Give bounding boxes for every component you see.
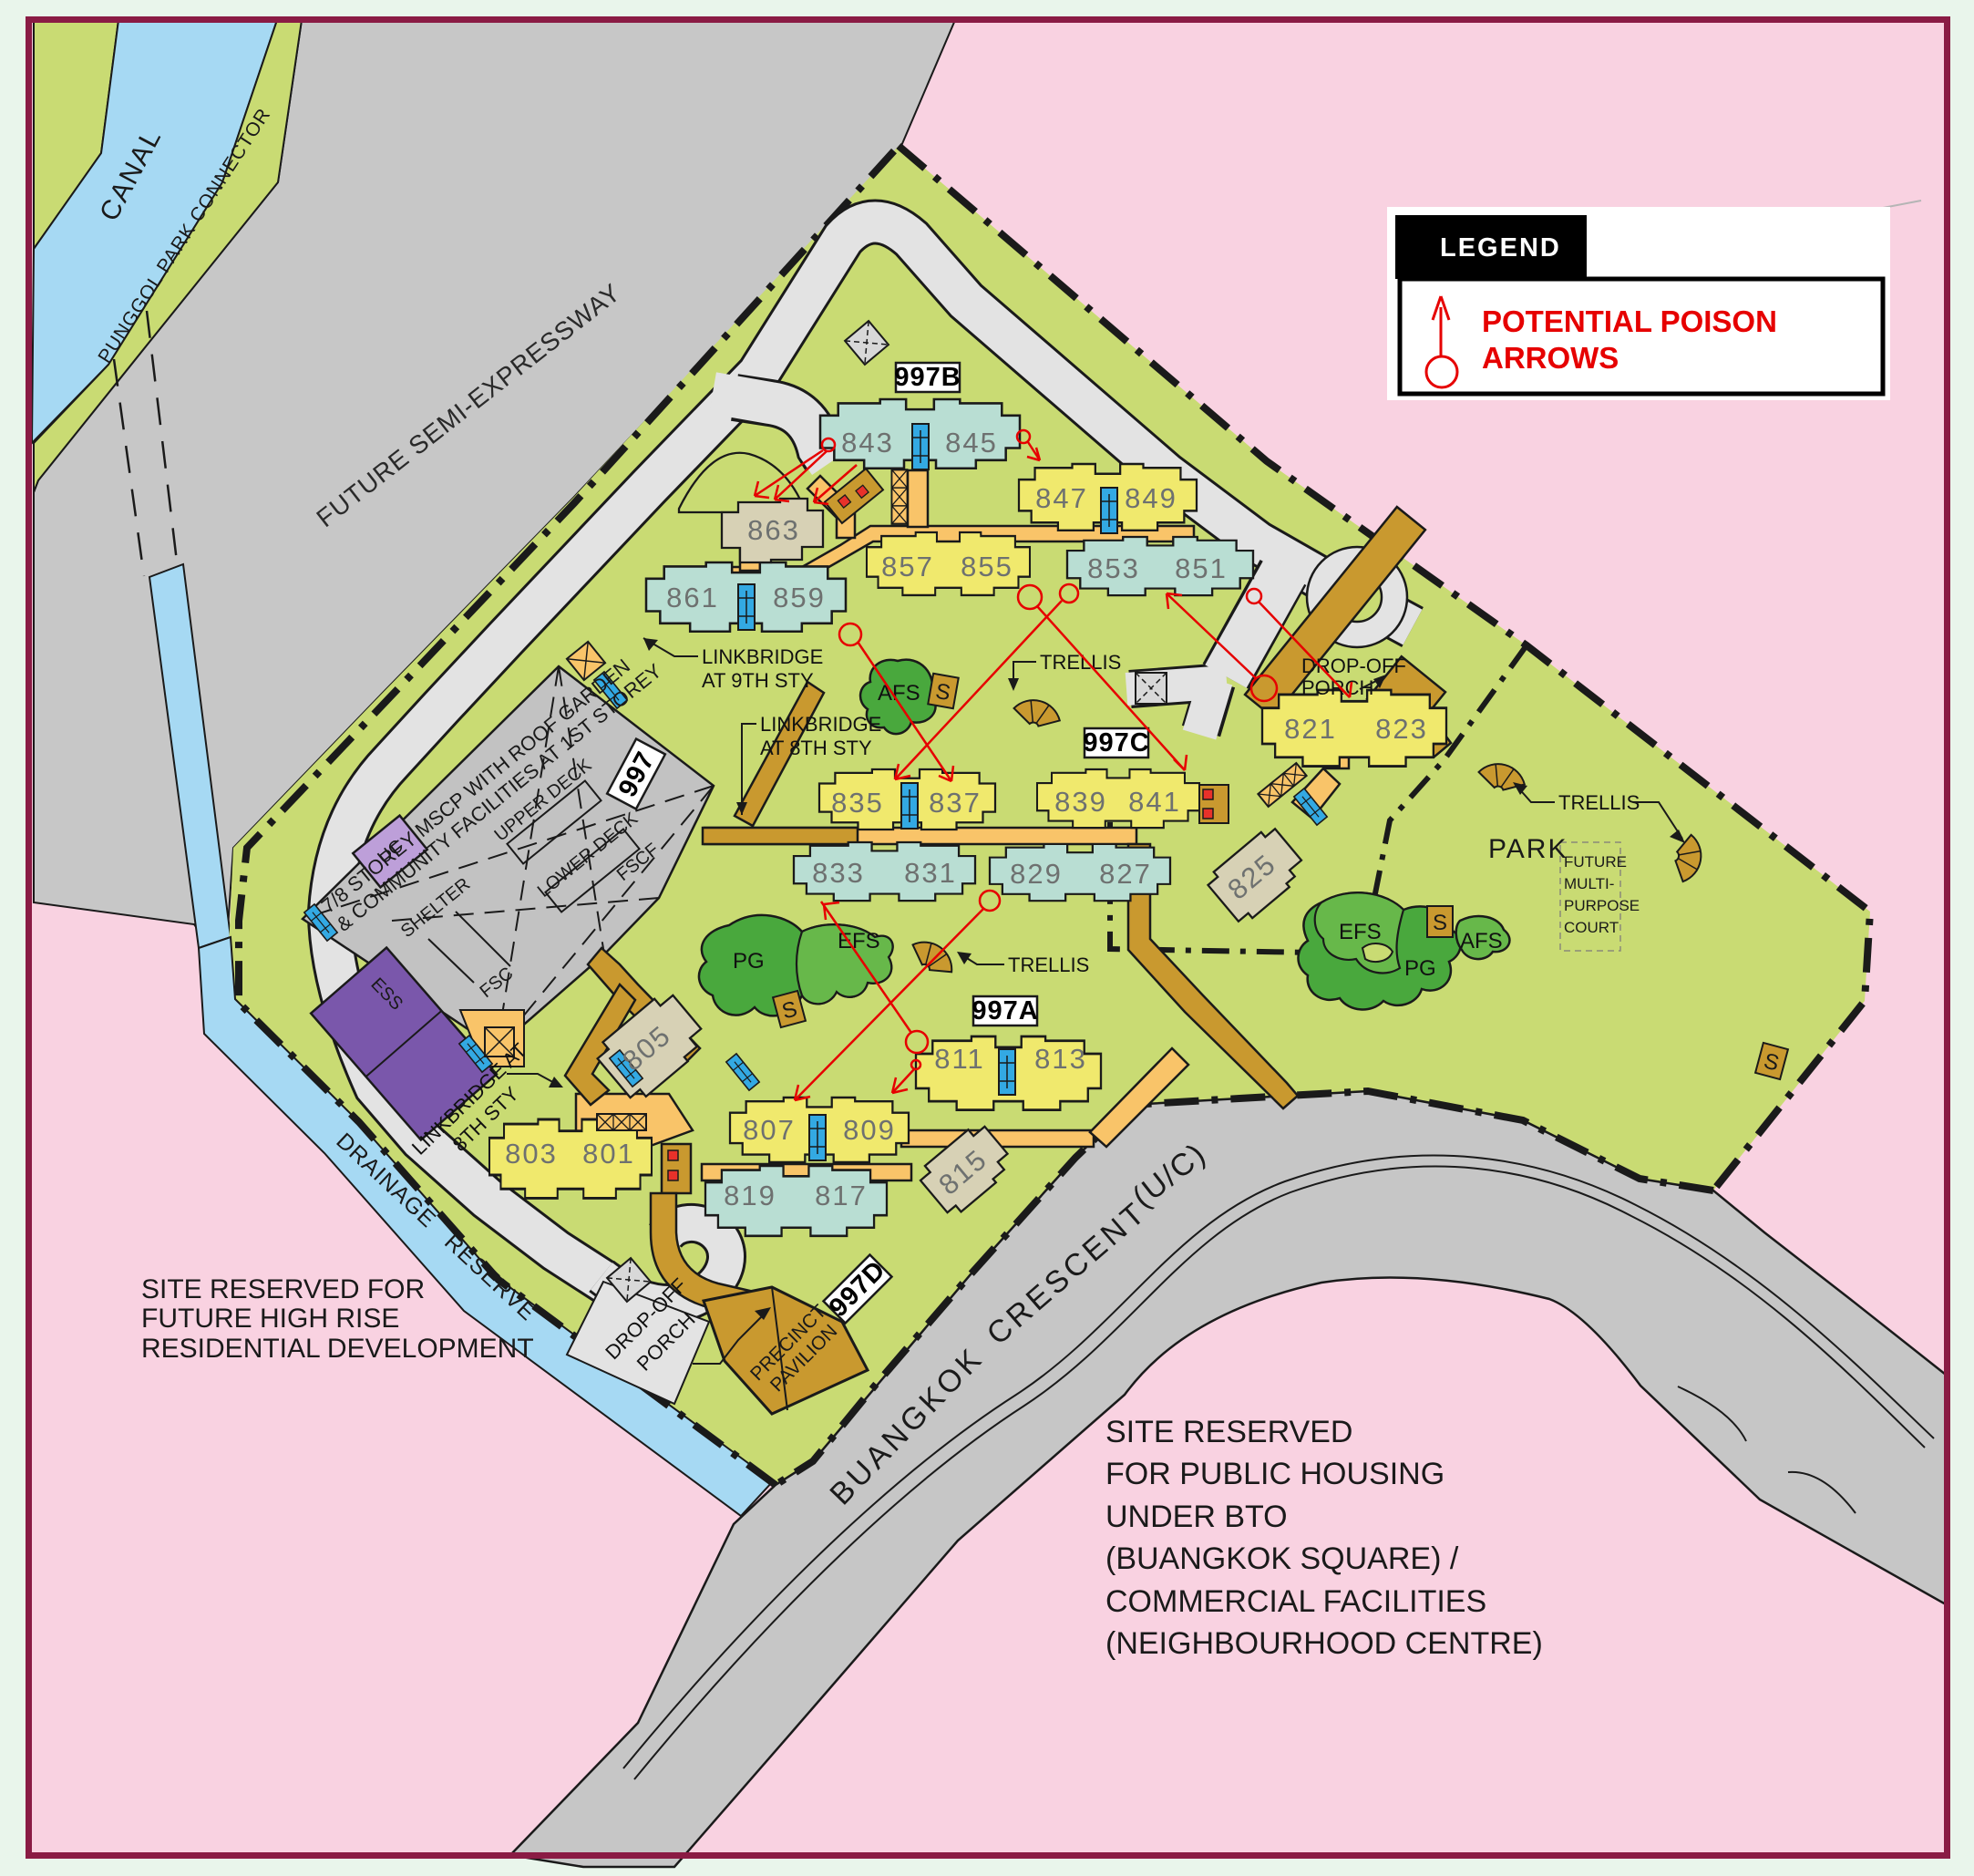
svg-text:801: 801 — [582, 1138, 635, 1170]
svg-text:(BUANGKOK SQUARE) /: (BUANGKOK SQUARE) / — [1105, 1541, 1459, 1576]
svg-text:833: 833 — [812, 857, 865, 889]
svg-text:(NEIGHBOURHOOD CENTRE): (NEIGHBOURHOOD CENTRE) — [1105, 1626, 1543, 1661]
svg-text:FUTURE HIGH RISE: FUTURE HIGH RISE — [141, 1304, 399, 1334]
svg-text:997C: 997C — [1083, 728, 1149, 758]
svg-text:829: 829 — [1010, 858, 1063, 890]
svg-text:PARK: PARK — [1488, 834, 1568, 864]
svg-text:EFS: EFS — [838, 929, 880, 953]
svg-text:PG: PG — [733, 949, 765, 974]
svg-text:POTENTIAL POISON: POTENTIAL POISON — [1482, 304, 1777, 338]
svg-text:ARROWS: ARROWS — [1482, 341, 1619, 375]
svg-text:EFS: EFS — [1339, 920, 1382, 944]
svg-text:LINKBRIDGE: LINKBRIDGE — [702, 645, 823, 668]
svg-text:847: 847 — [1035, 482, 1088, 514]
svg-text:PG: PG — [1404, 956, 1436, 981]
svg-text:SITE RESERVED FOR: SITE RESERVED FOR — [141, 1274, 425, 1304]
svg-text:AFS: AFS — [1460, 929, 1503, 953]
svg-text:851: 851 — [1175, 552, 1228, 584]
svg-text:853: 853 — [1087, 552, 1140, 584]
svg-text:TRELLIS: TRELLIS — [1008, 953, 1089, 976]
svg-text:859: 859 — [773, 582, 826, 613]
svg-text:819: 819 — [724, 1180, 776, 1211]
svg-text:LEGEND: LEGEND — [1440, 233, 1561, 263]
svg-text:COMMERCIAL FACILITIES: COMMERCIAL FACILITIES — [1105, 1584, 1486, 1619]
svg-text:857: 857 — [881, 551, 934, 582]
svg-text:DROP-OFF: DROP-OFF — [1301, 655, 1406, 677]
svg-text:861: 861 — [666, 582, 719, 613]
svg-text:811: 811 — [934, 1043, 984, 1075]
svg-text:821: 821 — [1284, 713, 1337, 745]
svg-text:803: 803 — [505, 1138, 558, 1170]
svg-text:SITE RESERVED: SITE RESERVED — [1105, 1415, 1352, 1449]
svg-text:835: 835 — [831, 787, 884, 819]
svg-text:PURPOSE: PURPOSE — [1564, 897, 1640, 914]
svg-text:827: 827 — [1099, 858, 1152, 890]
svg-text:809: 809 — [843, 1114, 896, 1146]
svg-text:817: 817 — [815, 1180, 868, 1211]
svg-text:849: 849 — [1125, 482, 1177, 514]
svg-text:823: 823 — [1375, 713, 1428, 745]
svg-text:FOR PUBLIC HOUSING: FOR PUBLIC HOUSING — [1105, 1457, 1445, 1491]
svg-text:FUTURE: FUTURE — [1564, 853, 1627, 871]
svg-text:841: 841 — [1128, 786, 1181, 818]
svg-text:813: 813 — [1034, 1043, 1087, 1075]
svg-text:863: 863 — [747, 514, 800, 546]
svg-text:831: 831 — [904, 857, 957, 889]
svg-text:807: 807 — [743, 1114, 796, 1146]
svg-text:997A: 997A — [972, 996, 1038, 1026]
svg-text:TRELLIS: TRELLIS — [1558, 791, 1640, 814]
svg-text:MULTI-: MULTI- — [1564, 875, 1614, 892]
svg-text:997B: 997B — [894, 363, 961, 392]
svg-text:837: 837 — [929, 787, 982, 819]
svg-text:843: 843 — [841, 427, 894, 459]
svg-text:AT 8TH STY: AT 8TH STY — [760, 737, 872, 759]
svg-text:COURT: COURT — [1564, 919, 1619, 936]
svg-text:845: 845 — [945, 427, 998, 459]
svg-text:RESIDENTIAL DEVELOPMENT: RESIDENTIAL DEVELOPMENT — [141, 1334, 534, 1364]
svg-text:LINKBRIDGE: LINKBRIDGE — [760, 713, 881, 736]
svg-text:UNDER BTO: UNDER BTO — [1105, 1500, 1288, 1534]
svg-text:839: 839 — [1054, 786, 1107, 818]
svg-text:855: 855 — [961, 551, 1013, 582]
svg-text:AT 9TH STY: AT 9TH STY — [702, 669, 814, 692]
